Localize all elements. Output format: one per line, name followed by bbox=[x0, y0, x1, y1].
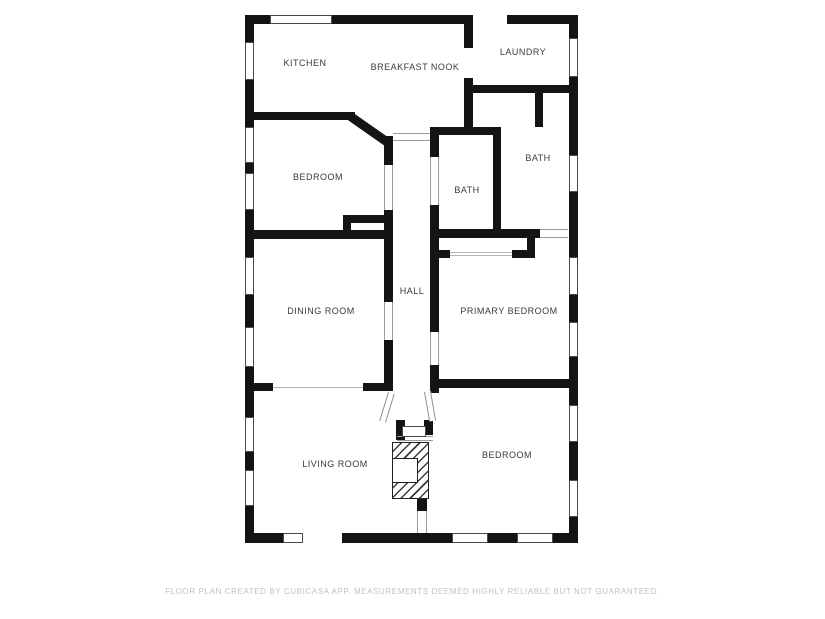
wall-segment bbox=[332, 15, 473, 24]
floor-plan-page: KITCHENBREAKFAST NOOKLAUNDRYBEDROOMBATHB… bbox=[0, 0, 825, 619]
room-label-living-room: LIVING ROOM bbox=[302, 459, 368, 469]
room-label-bath-right: BATH bbox=[525, 153, 550, 163]
door-opening bbox=[417, 511, 427, 533]
room-label-kitchen: KITCHEN bbox=[283, 58, 326, 68]
footer-disclaimer: FLOOR PLAN CREATED BY CUBICASA APP. MEAS… bbox=[0, 587, 825, 596]
room-label-laundry: LAUNDRY bbox=[500, 47, 546, 57]
wall-segment bbox=[384, 210, 393, 302]
wall-opening bbox=[303, 533, 342, 543]
window bbox=[245, 327, 254, 367]
window bbox=[245, 470, 254, 506]
wall-segment bbox=[507, 15, 578, 24]
wall-segment bbox=[342, 533, 452, 543]
threshold-line bbox=[273, 387, 363, 388]
door-opening bbox=[430, 157, 439, 205]
wall-segment bbox=[569, 517, 578, 543]
wall-segment bbox=[351, 215, 384, 223]
entry-splay bbox=[379, 392, 394, 423]
window bbox=[245, 173, 254, 210]
wall-segment bbox=[464, 24, 473, 48]
window bbox=[245, 417, 254, 452]
wall-segment bbox=[512, 250, 535, 258]
passage-threshold bbox=[393, 133, 430, 141]
wall-opening bbox=[464, 48, 473, 78]
wall-segment bbox=[569, 295, 578, 322]
wall-segment bbox=[569, 15, 578, 38]
fireplace-notch bbox=[392, 458, 418, 483]
door-opening bbox=[384, 165, 393, 210]
wall-segment bbox=[493, 127, 501, 230]
wall-segment bbox=[430, 229, 540, 238]
wall-segment bbox=[436, 379, 578, 388]
window bbox=[569, 480, 578, 517]
wall-segment bbox=[569, 192, 578, 257]
wall-segment bbox=[430, 127, 501, 135]
wall-segment bbox=[245, 367, 254, 417]
wall-segment bbox=[245, 163, 254, 173]
window bbox=[283, 533, 303, 543]
room-label-primary-bedroom: PRIMARY BEDROOM bbox=[460, 306, 557, 316]
wall-segment bbox=[245, 112, 355, 120]
wall-segment bbox=[438, 250, 450, 258]
wall-segment bbox=[245, 506, 254, 543]
window bbox=[569, 257, 578, 295]
wall-segment bbox=[245, 295, 254, 327]
door-opening bbox=[384, 302, 393, 340]
window bbox=[569, 405, 578, 442]
window bbox=[517, 533, 553, 543]
front-door bbox=[402, 426, 426, 437]
room-label-bedroom-lower: BEDROOM bbox=[482, 450, 532, 460]
wall-segment bbox=[363, 383, 393, 391]
window bbox=[569, 322, 578, 357]
wall-segment bbox=[343, 215, 351, 238]
door-opening bbox=[430, 332, 439, 365]
wall-segment bbox=[245, 452, 254, 470]
room-label-breakfast-nook: BREAKFAST NOOK bbox=[371, 62, 460, 72]
window bbox=[245, 42, 254, 80]
room-label-bath-left: BATH bbox=[454, 185, 479, 195]
wall-diagonal bbox=[347, 112, 392, 147]
wall-segment bbox=[245, 230, 393, 239]
window bbox=[245, 257, 254, 295]
window bbox=[569, 155, 578, 192]
room-label-hall: HALL bbox=[400, 286, 425, 296]
wall-segment bbox=[569, 442, 578, 480]
wall-segment bbox=[245, 383, 273, 391]
window bbox=[270, 15, 332, 24]
threshold-line bbox=[450, 252, 512, 253]
window bbox=[569, 38, 578, 77]
room-label-bedroom-upper: BEDROOM bbox=[293, 172, 343, 182]
threshold-line bbox=[450, 255, 512, 256]
wall-segment bbox=[464, 85, 578, 93]
wall-segment bbox=[535, 93, 543, 127]
window bbox=[245, 127, 254, 163]
wall-segment bbox=[245, 15, 254, 42]
wall-segment bbox=[430, 205, 439, 332]
window bbox=[452, 533, 488, 543]
floor-plan: KITCHENBREAKFAST NOOKLAUNDRYBEDROOMBATHB… bbox=[0, 0, 825, 619]
wall-segment bbox=[488, 533, 517, 543]
entry-splay bbox=[424, 391, 436, 422]
door-opening bbox=[540, 229, 568, 238]
wall-opening bbox=[473, 15, 507, 24]
room-label-dining-room: DINING ROOM bbox=[287, 306, 355, 316]
